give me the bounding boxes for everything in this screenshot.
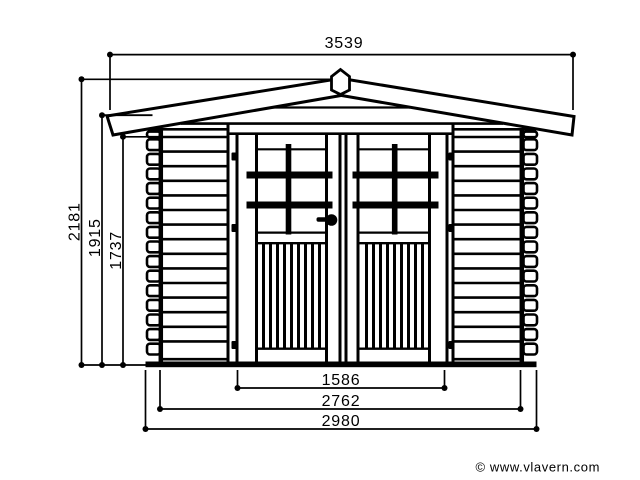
svg-text:© www.vlavern.com: © www.vlavern.com	[475, 460, 600, 475]
svg-text:1915: 1915	[87, 218, 104, 257]
svg-text:2980: 2980	[322, 413, 361, 430]
svg-text:2181: 2181	[67, 202, 84, 241]
svg-text:3539: 3539	[325, 35, 364, 52]
svg-text:2762: 2762	[322, 393, 361, 410]
svg-text:1737: 1737	[108, 231, 125, 270]
svg-text:1586: 1586	[322, 372, 361, 389]
